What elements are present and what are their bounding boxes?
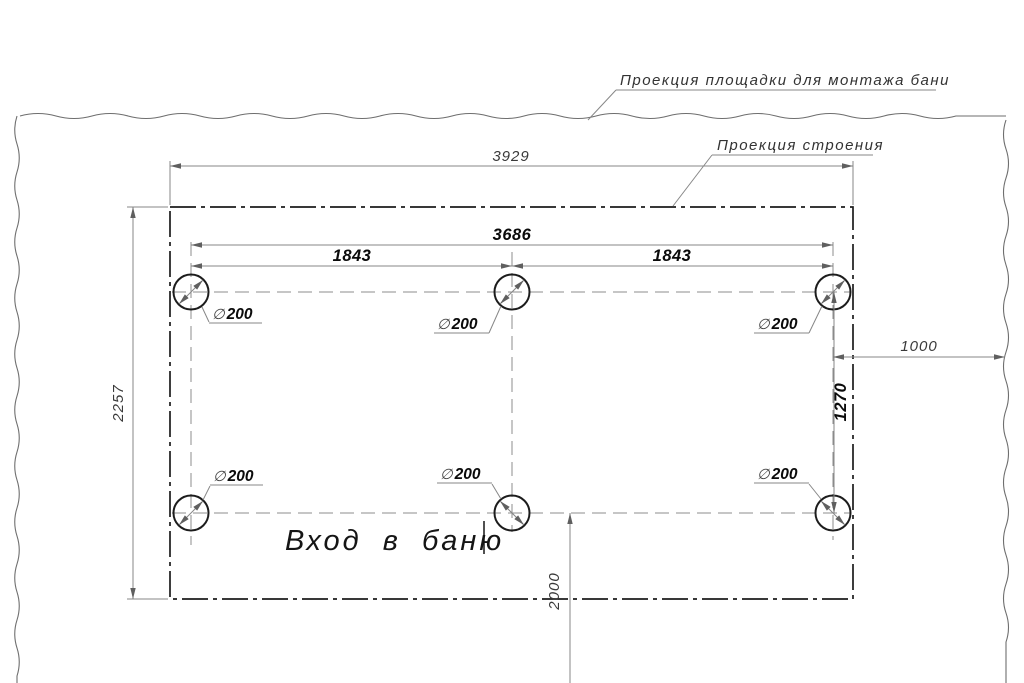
pile-diameter-label: ∅200 (213, 468, 254, 485)
dim-pile-spacing-left: 1843 (191, 247, 512, 266)
drawing-surface: ∅200 ∅200 ∅200 ∅200 ∅200 ∅200 (0, 0, 1024, 683)
dimension-value: 3929 (492, 148, 529, 165)
callout-label: Проекция строения (717, 137, 884, 154)
dim-row-spacing: 1270 (832, 292, 850, 513)
pile-top-middle: ∅200 (434, 275, 530, 334)
pile-diameter-label: ∅200 (757, 316, 798, 333)
pile-diameter-label: ∅200 (440, 466, 481, 483)
dimension-value: 3686 (493, 226, 532, 244)
callout-platform: Проекция площадки для монтажа бани (588, 72, 950, 120)
pile-bottom-left: ∅200 (174, 468, 264, 531)
pile-label-leader (809, 306, 822, 333)
callout-building: Проекция строения (673, 137, 884, 206)
callout-leader (673, 155, 712, 206)
platform-edge-left (15, 116, 20, 683)
pile-label-leader (489, 306, 501, 333)
pile-label-leader (492, 484, 501, 499)
pile-diameter-label: ∅200 (212, 306, 253, 323)
pile-diameter-label: ∅200 (437, 316, 478, 333)
dimension-value: 2000 (546, 572, 563, 610)
dim-pile-spacing-right: 1843 (512, 247, 833, 266)
callout-label: Проекция площадки для монтажа бани (620, 72, 950, 89)
pile-top-right: ∅200 (754, 275, 851, 334)
dimension-value: 1000 (900, 338, 937, 355)
pile-label-leader (203, 486, 210, 500)
pile-top-left: ∅200 (174, 275, 263, 324)
dimension-value: 1843 (653, 247, 692, 265)
dim-pile-span: 3686 (191, 226, 833, 245)
pile-bottom-right: ∅200 (754, 466, 851, 531)
pile-bottom-middle: ∅200 (437, 466, 530, 531)
foundation-plan-drawing: ∅200 ∅200 ∅200 ∅200 ∅200 ∅200 (0, 0, 1024, 683)
dimension-value: 2257 (110, 384, 127, 422)
entrance-label: Вход в баню (285, 525, 504, 557)
platform-edge-top (20, 114, 1006, 119)
pile-label-leader (202, 307, 209, 322)
dim-entrance-axis: 2000 (546, 513, 570, 683)
dimension-value: 1270 (832, 382, 850, 421)
pile-label-leader (809, 484, 821, 499)
dim-right-offset: 1000 (833, 338, 1005, 357)
dimension-value: 1843 (333, 247, 372, 265)
pile-diameter-label: ∅200 (757, 466, 798, 483)
dim-overall-width: 3929 (170, 148, 853, 205)
callout-leader (588, 90, 616, 120)
platform-edge-right (1004, 120, 1009, 683)
dim-overall-depth: 2257 (110, 207, 168, 599)
